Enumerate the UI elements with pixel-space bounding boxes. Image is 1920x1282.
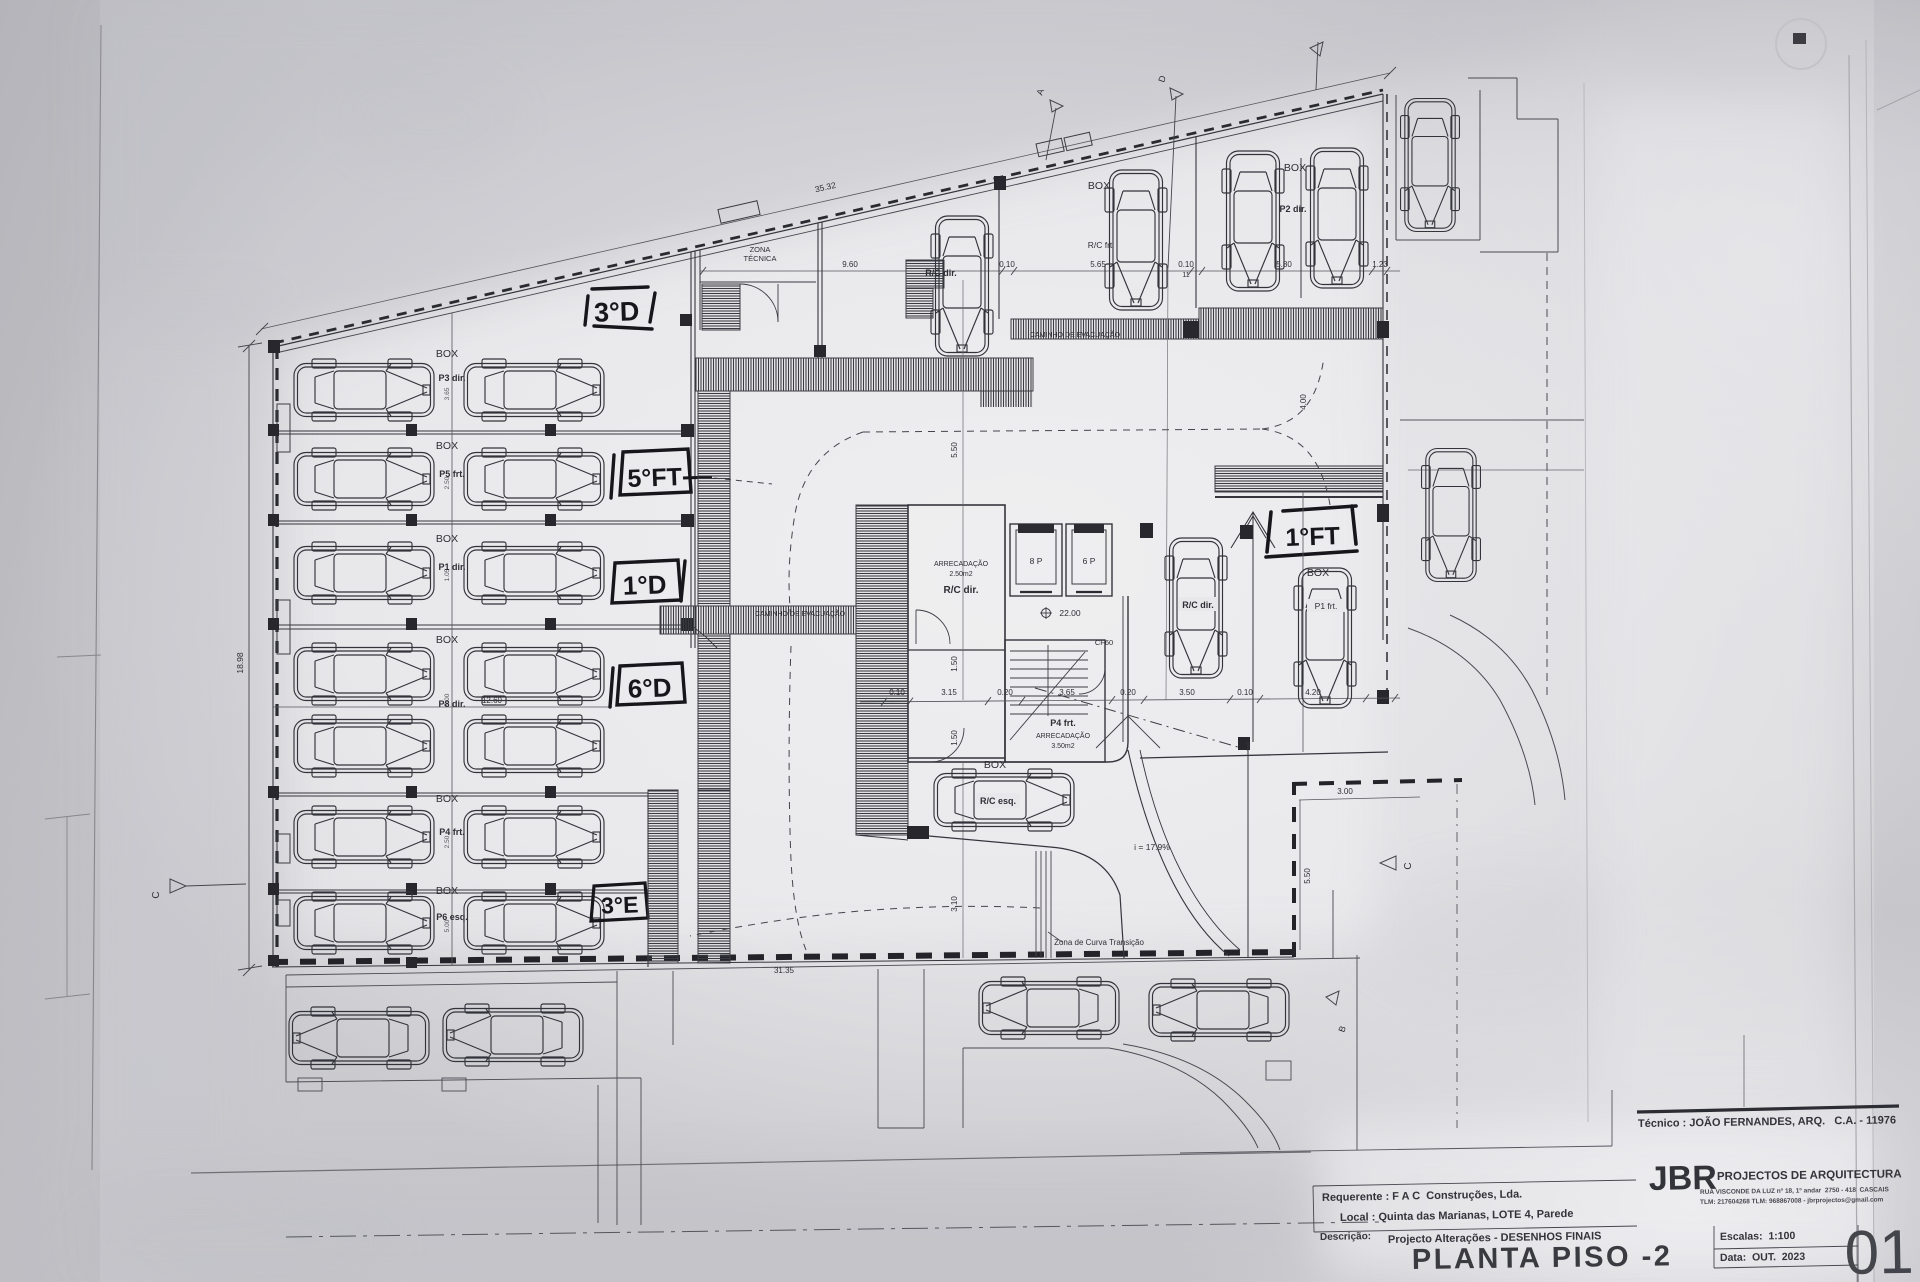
svg-text:P2 dir.: P2 dir.	[1279, 204, 1306, 214]
svg-text:3.00: 3.00	[1337, 787, 1353, 796]
svg-text:4.00: 4.00	[1299, 394, 1308, 410]
svg-text:TÉCNICA: TÉCNICA	[744, 254, 777, 263]
svg-text:0.10: 0.10	[1178, 260, 1194, 269]
svg-text:PLANTA PISO -2: PLANTA PISO -2	[1412, 1240, 1673, 1276]
svg-text:0.20: 0.20	[1120, 688, 1136, 697]
svg-text:BOX: BOX	[436, 634, 458, 646]
svg-text:CAMINHO DE EVACUAÇÃO: CAMINHO DE EVACUAÇÃO	[755, 609, 846, 618]
svg-text:P4 frt.: P4 frt.	[1050, 718, 1076, 728]
svg-text:i = 17.9%: i = 17.9%	[1134, 842, 1170, 852]
svg-text:9.60: 9.60	[842, 260, 858, 269]
svg-text:R/C dir.: R/C dir.	[943, 585, 978, 596]
svg-text:31.35: 31.35	[774, 966, 795, 975]
svg-text:1.50: 1.50	[950, 730, 959, 746]
svg-text:R/C dir.: R/C dir.	[1182, 600, 1214, 610]
svg-text:0.10: 0.10	[889, 688, 905, 697]
svg-text:P3 dir.: P3 dir.	[438, 373, 465, 383]
svg-text:Descrição:: Descrição:	[1320, 1231, 1371, 1243]
svg-text:P1 frt.: P1 frt.	[1315, 601, 1338, 611]
svg-text:3°D: 3°D	[594, 296, 640, 328]
svg-text:3.65: 3.65	[1059, 688, 1075, 697]
svg-text:BOX: BOX	[1088, 180, 1110, 192]
svg-text:ARRECADAÇÃO: ARRECADAÇÃO	[1036, 731, 1091, 740]
svg-text:BOX: BOX	[436, 793, 458, 805]
svg-text:R/C dir.: R/C dir.	[925, 268, 957, 278]
svg-text:P8 dir.: P8 dir.	[438, 699, 465, 709]
svg-text:3.50: 3.50	[1179, 688, 1195, 697]
svg-text:P4 frt.: P4 frt.	[439, 827, 465, 837]
svg-text:1°FT: 1°FT	[1285, 522, 1340, 552]
svg-text:ZONA: ZONA	[750, 245, 771, 254]
svg-text:Data: OUT. 2023: Data: OUT. 2023	[1720, 1251, 1806, 1264]
svg-text:Zona de Curva Transição: Zona de Curva Transição	[1054, 938, 1144, 947]
svg-text:5.65: 5.65	[1090, 260, 1106, 269]
svg-text:CF60: CF60	[1095, 638, 1113, 647]
svg-text:6°D: 6°D	[627, 672, 672, 704]
svg-text:3.10: 3.10	[950, 896, 959, 912]
svg-text:R/C esq.: R/C esq.	[980, 796, 1016, 806]
svg-text:ARRECADAÇÃO: ARRECADAÇÃO	[934, 559, 989, 568]
svg-text:2.50: 2.50	[444, 835, 451, 848]
svg-text:11: 11	[1182, 272, 1189, 279]
svg-text:BOX: BOX	[436, 885, 458, 897]
svg-text:3.50m2: 3.50m2	[1051, 743, 1074, 750]
svg-text:0.20: 0.20	[997, 688, 1013, 697]
svg-text:BOX: BOX	[436, 533, 458, 545]
svg-text:5°FT: 5°FT	[627, 463, 682, 493]
svg-text:BOX: BOX	[1284, 162, 1306, 174]
svg-text:18.98: 18.98	[235, 652, 245, 674]
svg-text:0.10: 0.10	[999, 260, 1015, 269]
svg-text:P6 esq.: P6 esq.	[436, 912, 468, 922]
svg-text:B: B	[1336, 1024, 1347, 1033]
svg-text:3.65: 3.65	[444, 387, 451, 400]
svg-text:BOX: BOX	[436, 440, 458, 452]
svg-text:3.15: 3.15	[941, 688, 957, 697]
svg-text:C: C	[1403, 862, 1414, 869]
svg-text:8 P: 8 P	[1030, 556, 1043, 566]
svg-text:P1 dir.: P1 dir.	[438, 562, 465, 572]
svg-text:0.10: 0.10	[1237, 688, 1253, 697]
svg-text:6 P: 6 P	[1083, 556, 1096, 566]
svg-text:BOX: BOX	[436, 348, 458, 360]
svg-text:BOX: BOX	[1307, 567, 1329, 579]
svg-text:C: C	[151, 891, 162, 898]
svg-text:1.50: 1.50	[950, 656, 959, 672]
svg-text:1°D: 1°D	[622, 569, 667, 601]
svg-text:BOX: BOX	[984, 759, 1006, 771]
svg-text:2.50m2: 2.50m2	[949, 571, 972, 578]
svg-text:R/C frt: R/C frt	[1088, 240, 1113, 250]
svg-text:3°E: 3°E	[601, 891, 639, 918]
svg-text:CAMINHO DE EVACUAÇÃO: CAMINHO DE EVACUAÇÃO	[1030, 330, 1121, 339]
svg-text:Escalas: 1:100: Escalas: 1:100	[1720, 1230, 1796, 1243]
svg-text:5.50: 5.50	[1303, 868, 1312, 884]
svg-text:P5 frt.: P5 frt.	[439, 469, 465, 479]
svg-text:22.00: 22.00	[1059, 608, 1081, 618]
svg-text:5.50: 5.50	[950, 442, 959, 458]
